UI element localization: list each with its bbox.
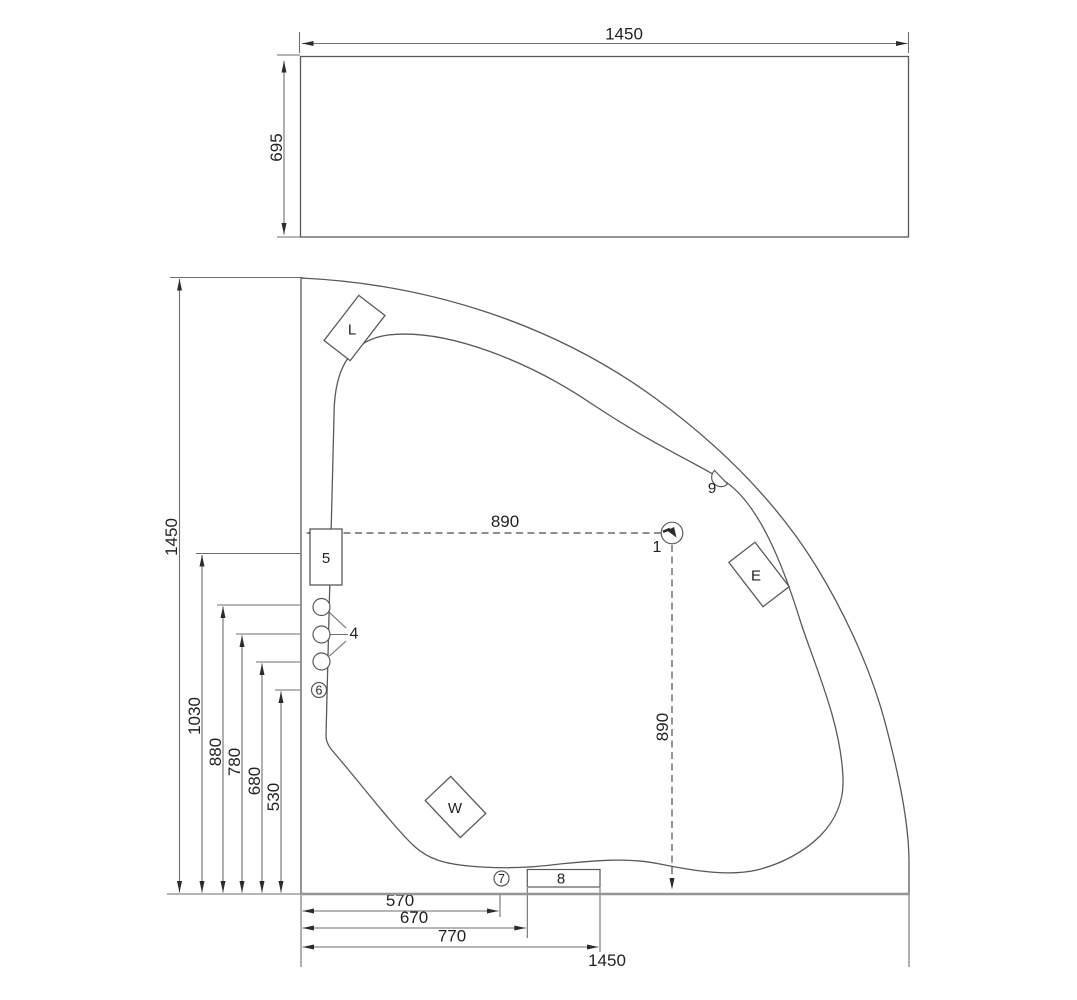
dim-label-780: 780 <box>225 748 244 776</box>
label-4-leader-lines <box>330 613 349 657</box>
side-view-extension-lines <box>277 32 909 237</box>
plan-view: 1450 1030 880 780 680 530 570 670 770 14… <box>162 278 910 971</box>
side-height-dim-label: 695 <box>267 133 286 161</box>
dim-label-890-v: 890 <box>653 713 672 741</box>
side-width-dim-label: 1450 <box>605 25 643 44</box>
dim-label-530: 530 <box>264 783 283 811</box>
bathtub-outer-rim <box>301 278 909 894</box>
jet-circle-middle <box>313 626 330 643</box>
dim-label-680: 680 <box>245 767 264 795</box>
label-5: 5 <box>322 550 330 567</box>
dim-label-670: 670 <box>400 908 428 927</box>
plan-bottom-dim-labels: 570 670 770 1450 <box>386 891 626 970</box>
label-7: 7 <box>498 872 505 886</box>
dim-label-770: 770 <box>438 927 466 946</box>
dim-label-1450-bottom: 1450 <box>588 951 626 970</box>
drawing-canvas: 1450 695 1450 1030 880 780 <box>0 0 1077 1000</box>
plan-left-extension-lines <box>170 278 303 691</box>
jet-circle-top <box>313 599 330 616</box>
label-W: W <box>448 800 463 817</box>
bathtub-technical-drawing: 1450 695 1450 1030 880 780 <box>0 0 1077 1000</box>
side-panel-outline <box>301 57 909 238</box>
label-8: 8 <box>557 871 565 888</box>
dim-label-890-h: 890 <box>491 512 519 531</box>
label-4: 4 <box>350 626 359 643</box>
jet-circle-bottom <box>313 653 330 670</box>
dim-label-880: 880 <box>206 738 225 766</box>
label-9: 9 <box>708 480 716 497</box>
label-6: 6 <box>316 684 323 698</box>
drain-locating-lines: 890 890 <box>306 512 673 890</box>
label-E: E <box>751 568 761 585</box>
label-1: 1 <box>653 539 662 556</box>
dim-label-1450-v: 1450 <box>162 518 181 556</box>
side-view: 1450 695 <box>267 25 909 238</box>
dim-label-1030: 1030 <box>185 697 204 735</box>
fittings: L E W 5 4 <box>310 295 789 887</box>
label-L: L <box>348 322 356 339</box>
